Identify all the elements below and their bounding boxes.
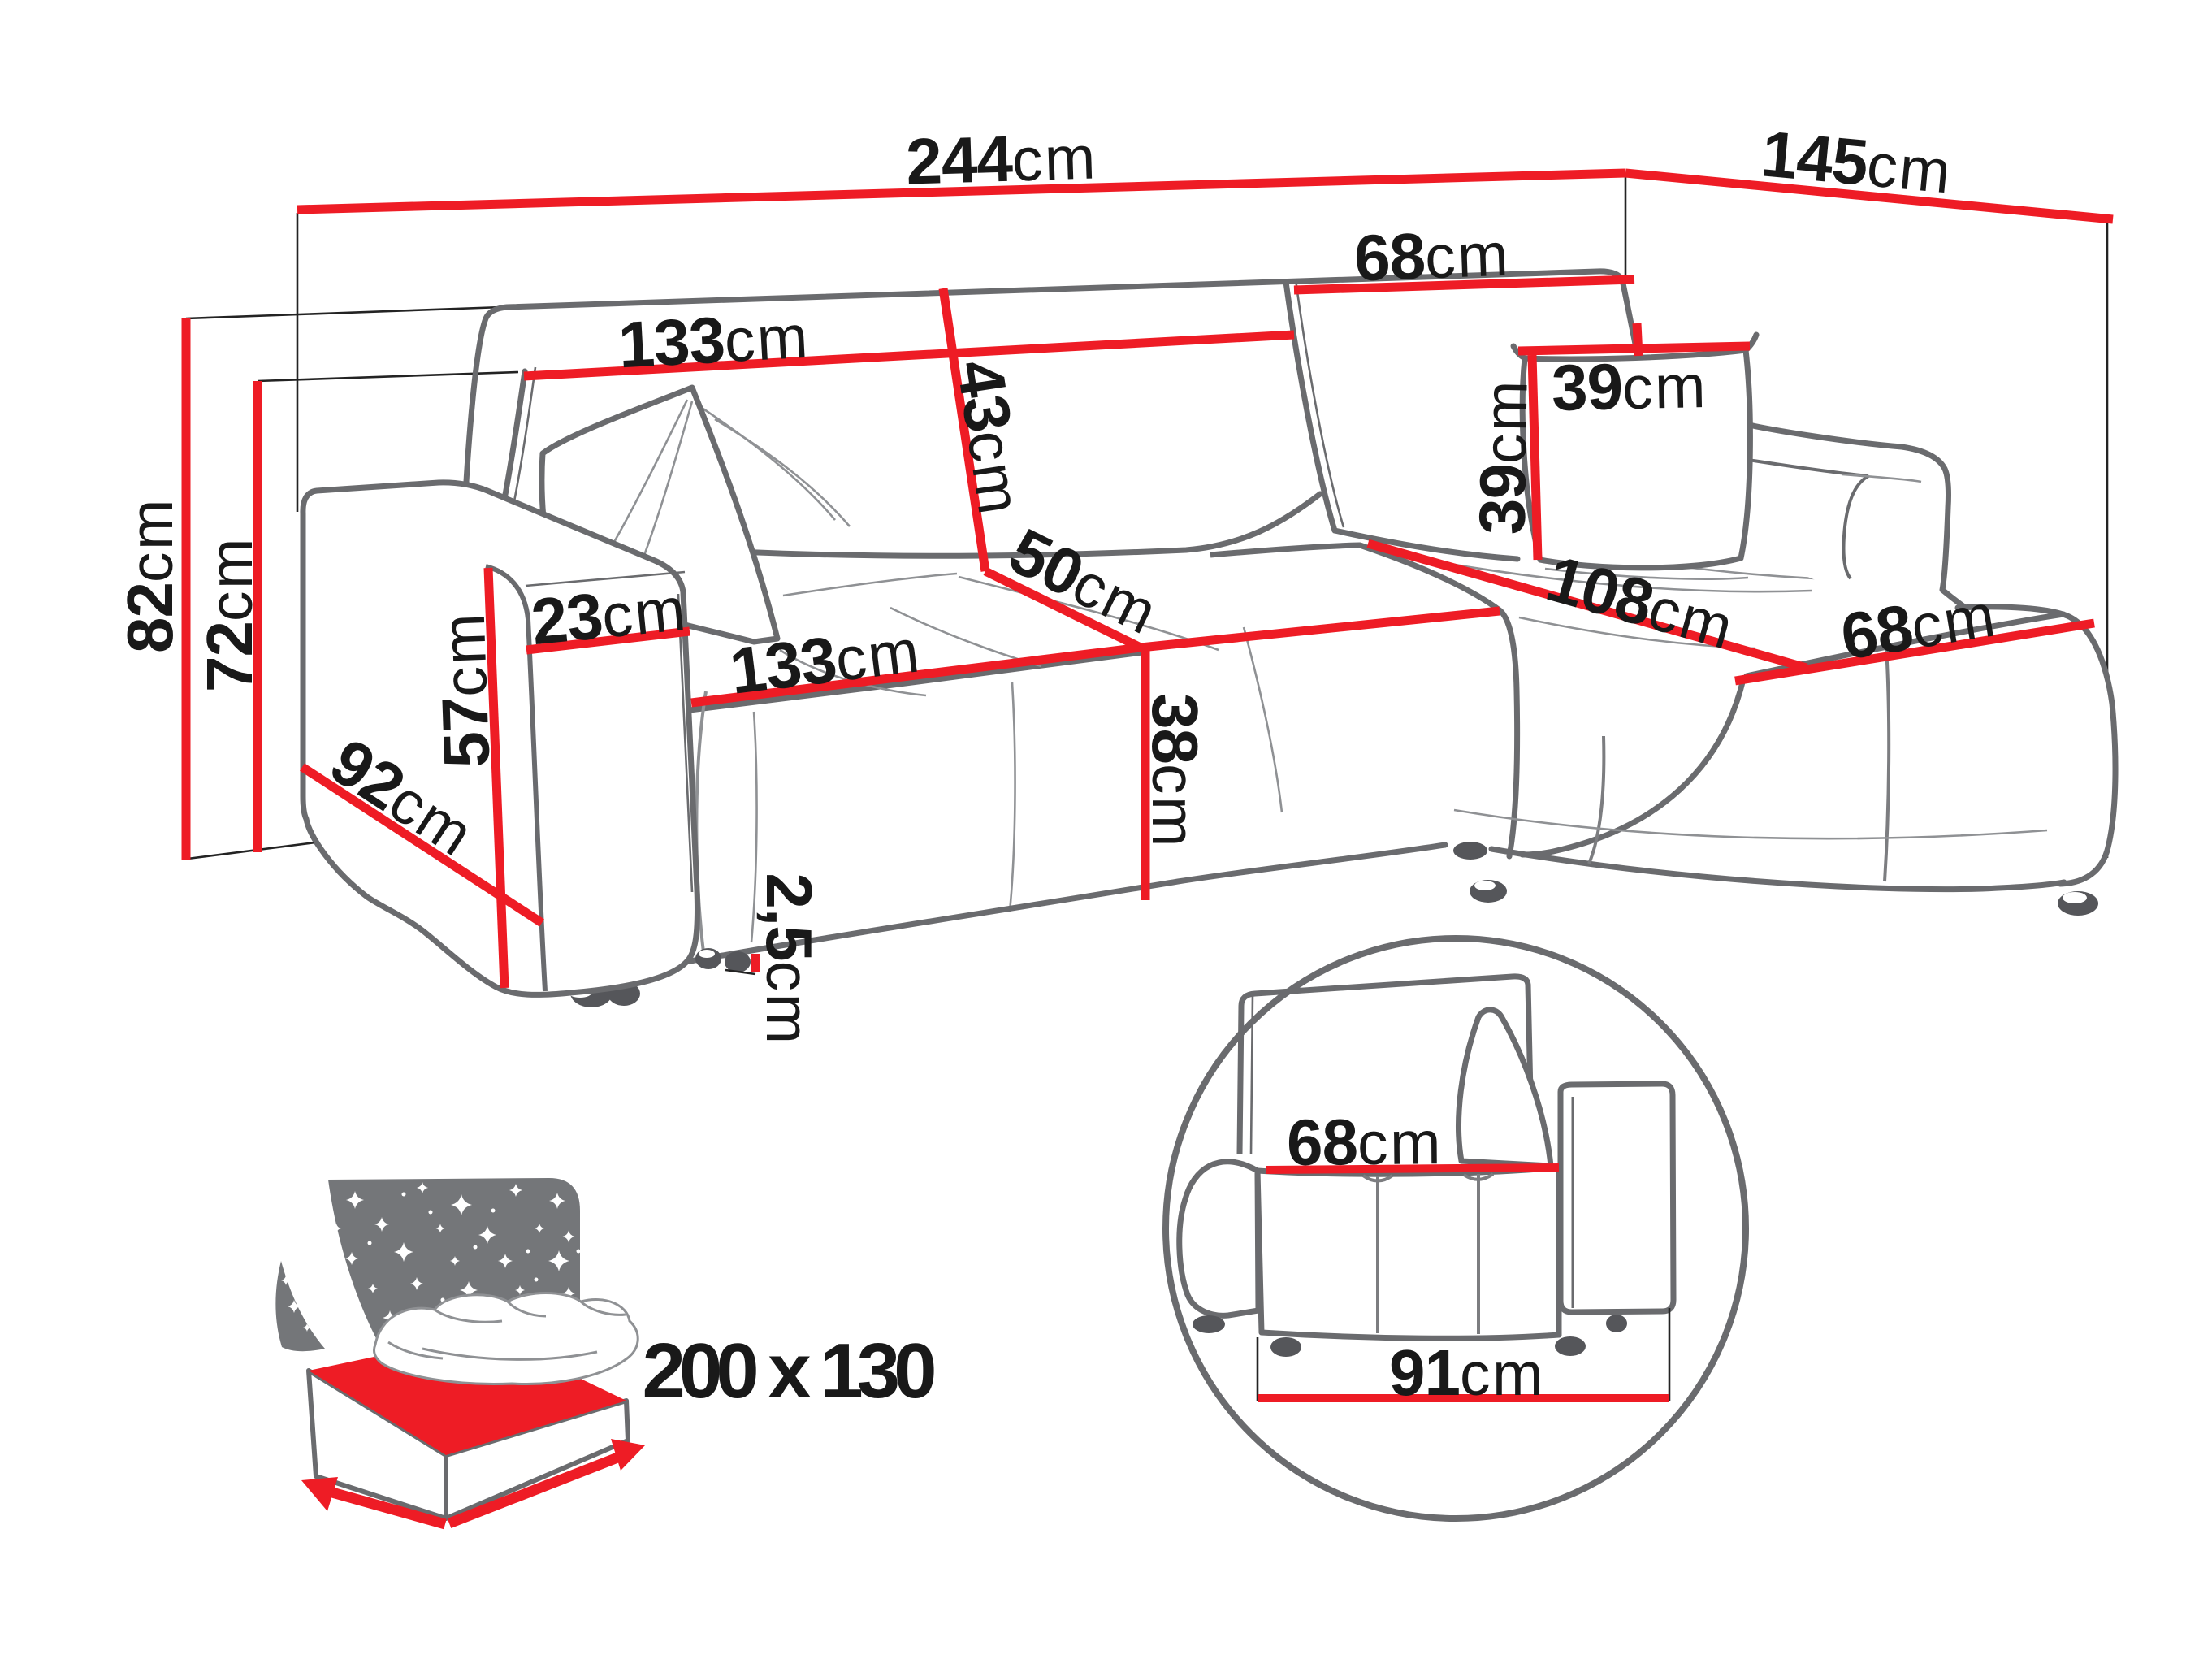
svg-text:133cm: 133cm [617,299,812,382]
svg-text:68cm: 68cm [1353,217,1512,295]
svg-text:91cm: 91cm [1389,1336,1545,1409]
svg-text:2,5cm: 2,5cm [753,873,825,1046]
svg-text:38cm: 38cm [1139,693,1211,849]
svg-text:244cm: 244cm [905,119,1098,197]
svg-text:39cm: 39cm [1465,378,1540,535]
svg-text:72cm: 72cm [193,536,266,692]
svg-text:82cm: 82cm [114,497,186,653]
svg-text:68cm: 68cm [1287,1105,1444,1179]
svg-text:57cm: 57cm [426,611,504,769]
svg-text:200 x 130: 200 x 130 [642,1328,934,1414]
svg-text:39cm: 39cm [1551,349,1708,424]
